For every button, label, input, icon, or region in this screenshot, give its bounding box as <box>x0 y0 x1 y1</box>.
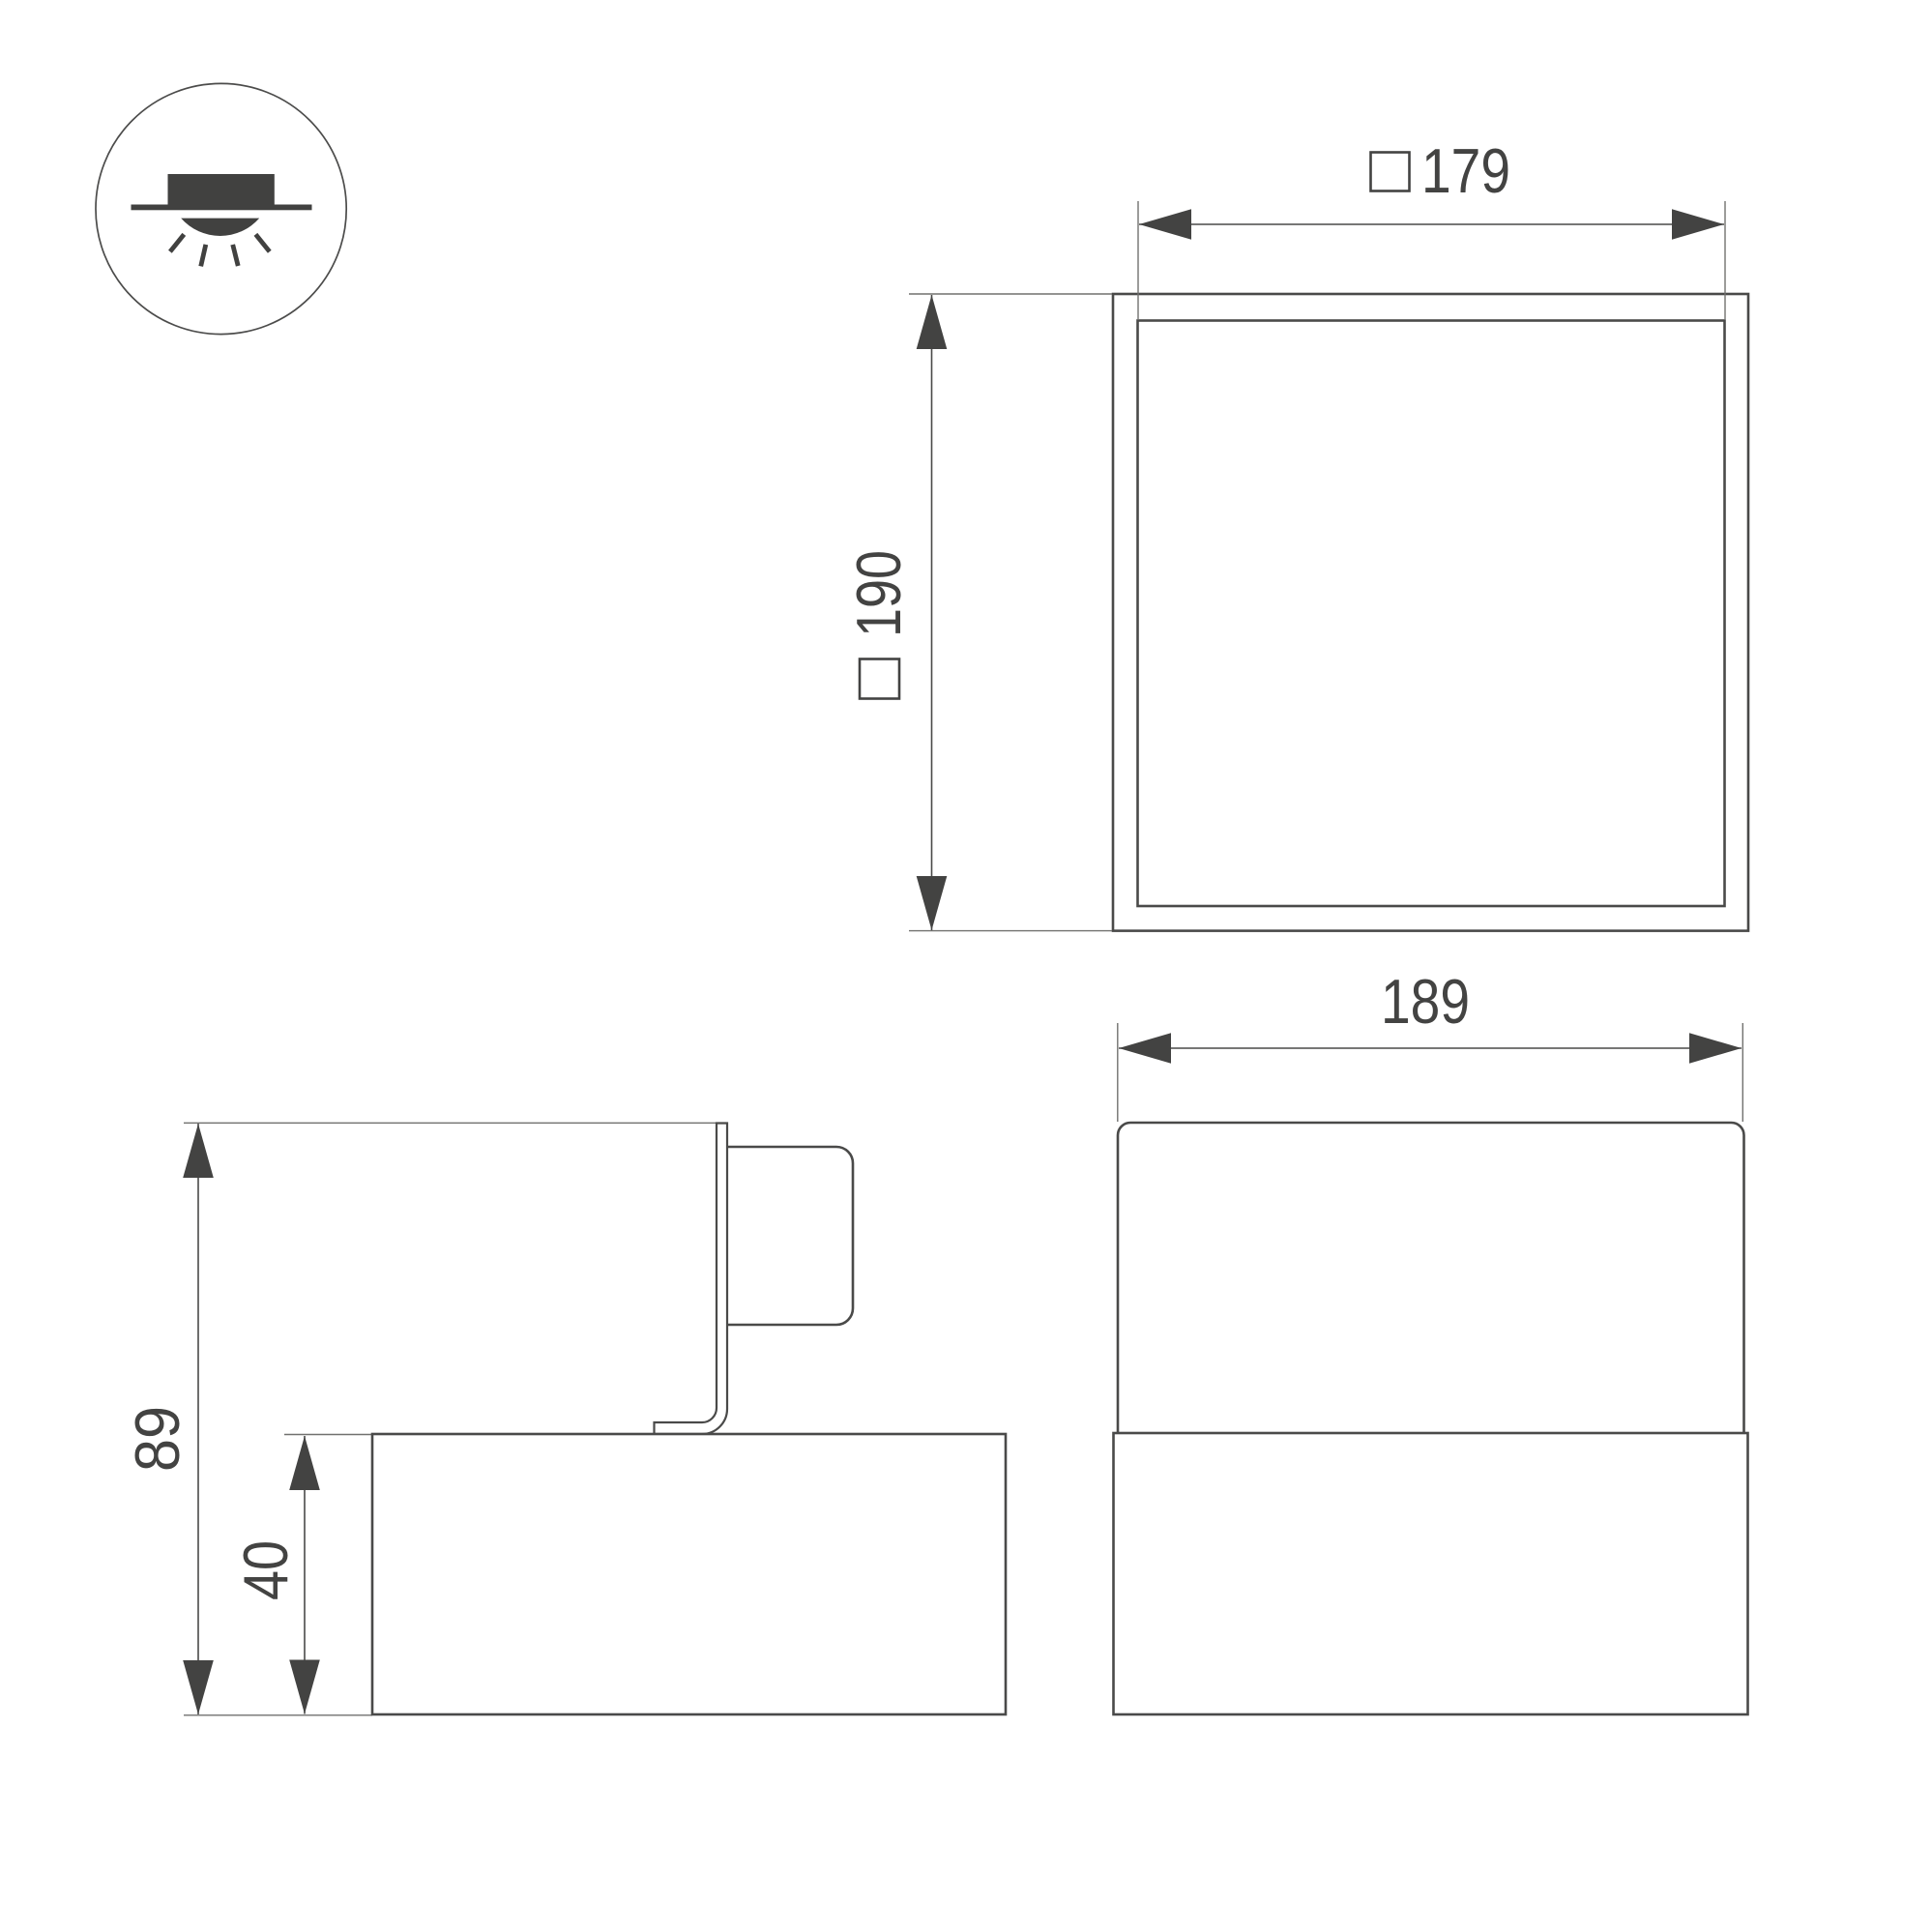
svg-text:89: 89 <box>122 1406 192 1472</box>
svg-text:190: 190 <box>843 550 914 637</box>
svg-text:40: 40 <box>230 1540 301 1600</box>
svg-text:189: 189 <box>1381 966 1470 1037</box>
svg-text:179: 179 <box>1421 135 1510 206</box>
